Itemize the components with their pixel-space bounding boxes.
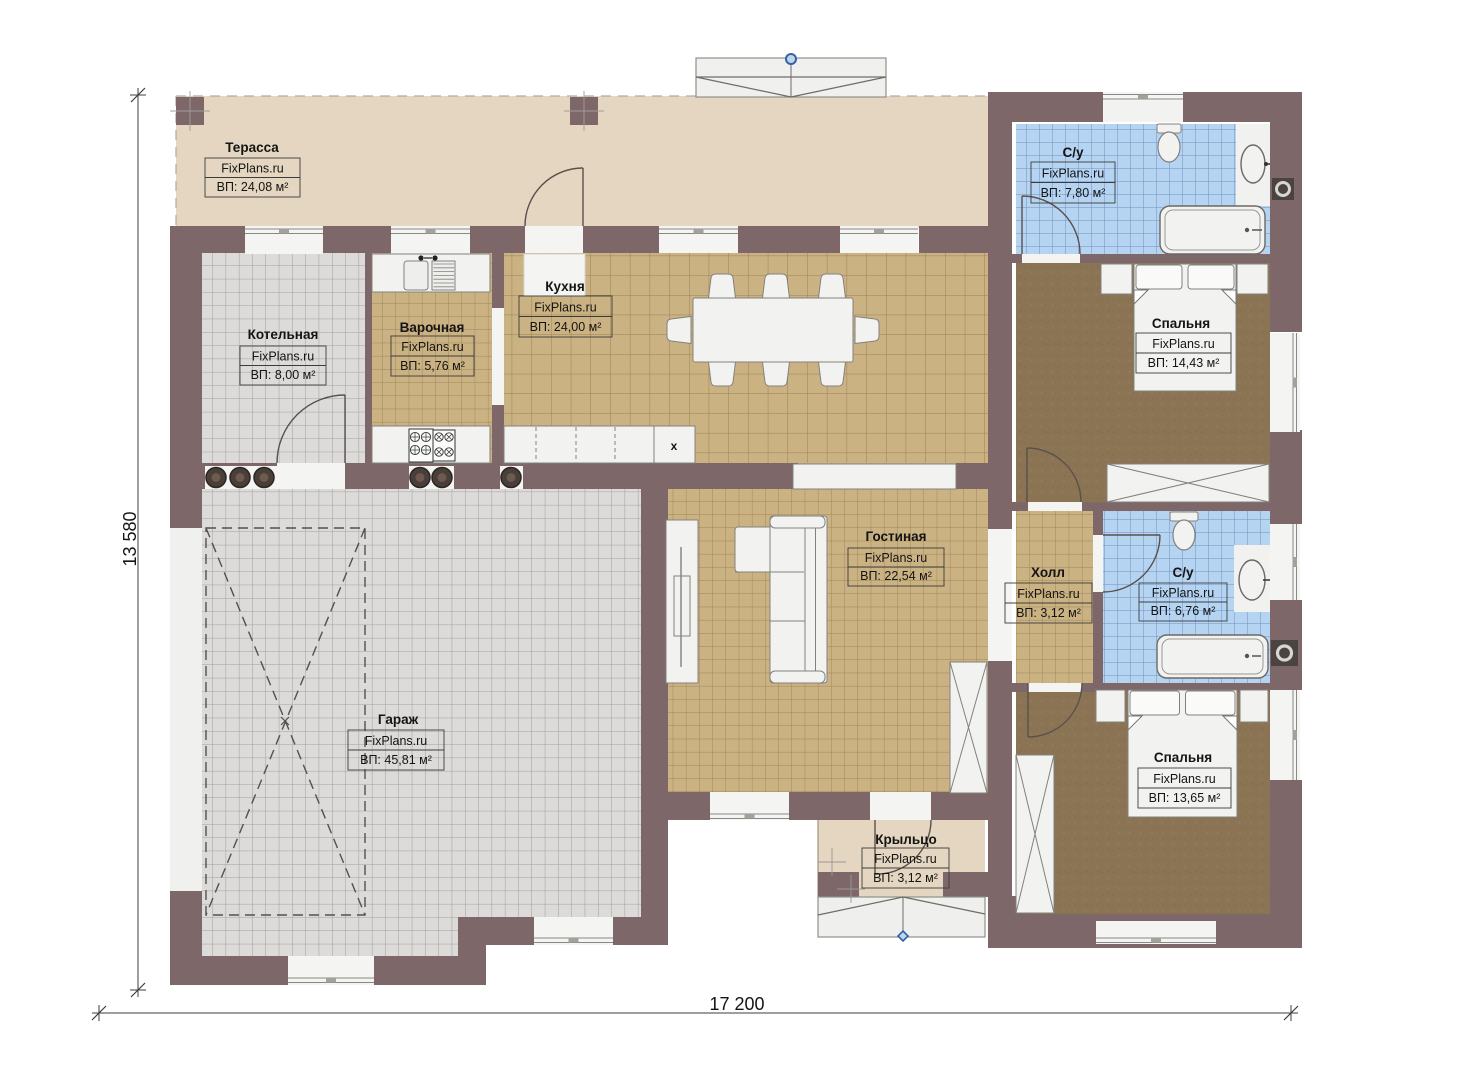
svg-text:FixPlans.ru: FixPlans.ru (1017, 587, 1080, 601)
svg-text:FixPlans.ru: FixPlans.ru (534, 301, 597, 315)
svg-text:FixPlans.ru: FixPlans.ru (1152, 337, 1215, 351)
svg-text:FixPlans.ru: FixPlans.ru (865, 551, 928, 565)
svg-text:Котельная: Котельная (248, 327, 319, 342)
svg-text:ВП: 3,12 м²: ВП: 3,12 м² (873, 871, 938, 885)
svg-text:ВП: 7,80 м²: ВП: 7,80 м² (1041, 186, 1106, 200)
svg-text:FixPlans.ru: FixPlans.ru (401, 340, 464, 354)
svg-text:ВП: 24,08 м²: ВП: 24,08 м² (217, 180, 289, 194)
svg-text:ВП: 14,43 м²: ВП: 14,43 м² (1148, 356, 1220, 370)
svg-text:Холл: Холл (1031, 565, 1065, 580)
svg-text:x: x (671, 439, 678, 453)
svg-text:Терасса: Терасса (225, 140, 279, 155)
svg-text:ВП: 5,76 м²: ВП: 5,76 м² (400, 359, 465, 373)
svg-text:Спальня: Спальня (1154, 750, 1212, 765)
svg-text:13 580: 13 580 (120, 511, 140, 566)
svg-text:ВП: 13,65 м²: ВП: 13,65 м² (1149, 791, 1221, 805)
svg-text:FixPlans.ru: FixPlans.ru (1152, 586, 1215, 600)
svg-text:ВП: 8,00 м²: ВП: 8,00 м² (251, 368, 316, 382)
svg-text:FixPlans.ru: FixPlans.ru (1042, 167, 1105, 181)
svg-text:Спальня: Спальня (1152, 316, 1210, 331)
svg-text:Гараж: Гараж (378, 712, 419, 727)
svg-text:ВП: 3,12 м²: ВП: 3,12 м² (1016, 606, 1081, 620)
svg-text:FixPlans.ru: FixPlans.ru (221, 162, 284, 176)
svg-text:Крыльцо: Крыльцо (875, 832, 936, 847)
svg-text:Гостиная: Гостиная (865, 529, 926, 544)
svg-text:ВП: 22,54 м²: ВП: 22,54 м² (860, 569, 932, 583)
svg-text:ВП: 24,00 м²: ВП: 24,00 м² (530, 320, 602, 334)
svg-text:ВП: 45,81 м²: ВП: 45,81 м² (360, 753, 432, 767)
svg-text:17 200: 17 200 (709, 994, 764, 1014)
svg-text:Варочная: Варочная (400, 320, 465, 335)
svg-text:Кухня: Кухня (545, 279, 584, 294)
svg-text:С/у: С/у (1172, 565, 1194, 580)
svg-text:FixPlans.ru: FixPlans.ru (365, 734, 428, 748)
svg-text:FixPlans.ru: FixPlans.ru (252, 350, 315, 364)
svg-text:FixPlans.ru: FixPlans.ru (1153, 772, 1216, 786)
svg-text:ВП: 6,76 м²: ВП: 6,76 м² (1151, 604, 1216, 618)
svg-text:С/у: С/у (1062, 145, 1084, 160)
svg-text:FixPlans.ru: FixPlans.ru (874, 852, 937, 866)
